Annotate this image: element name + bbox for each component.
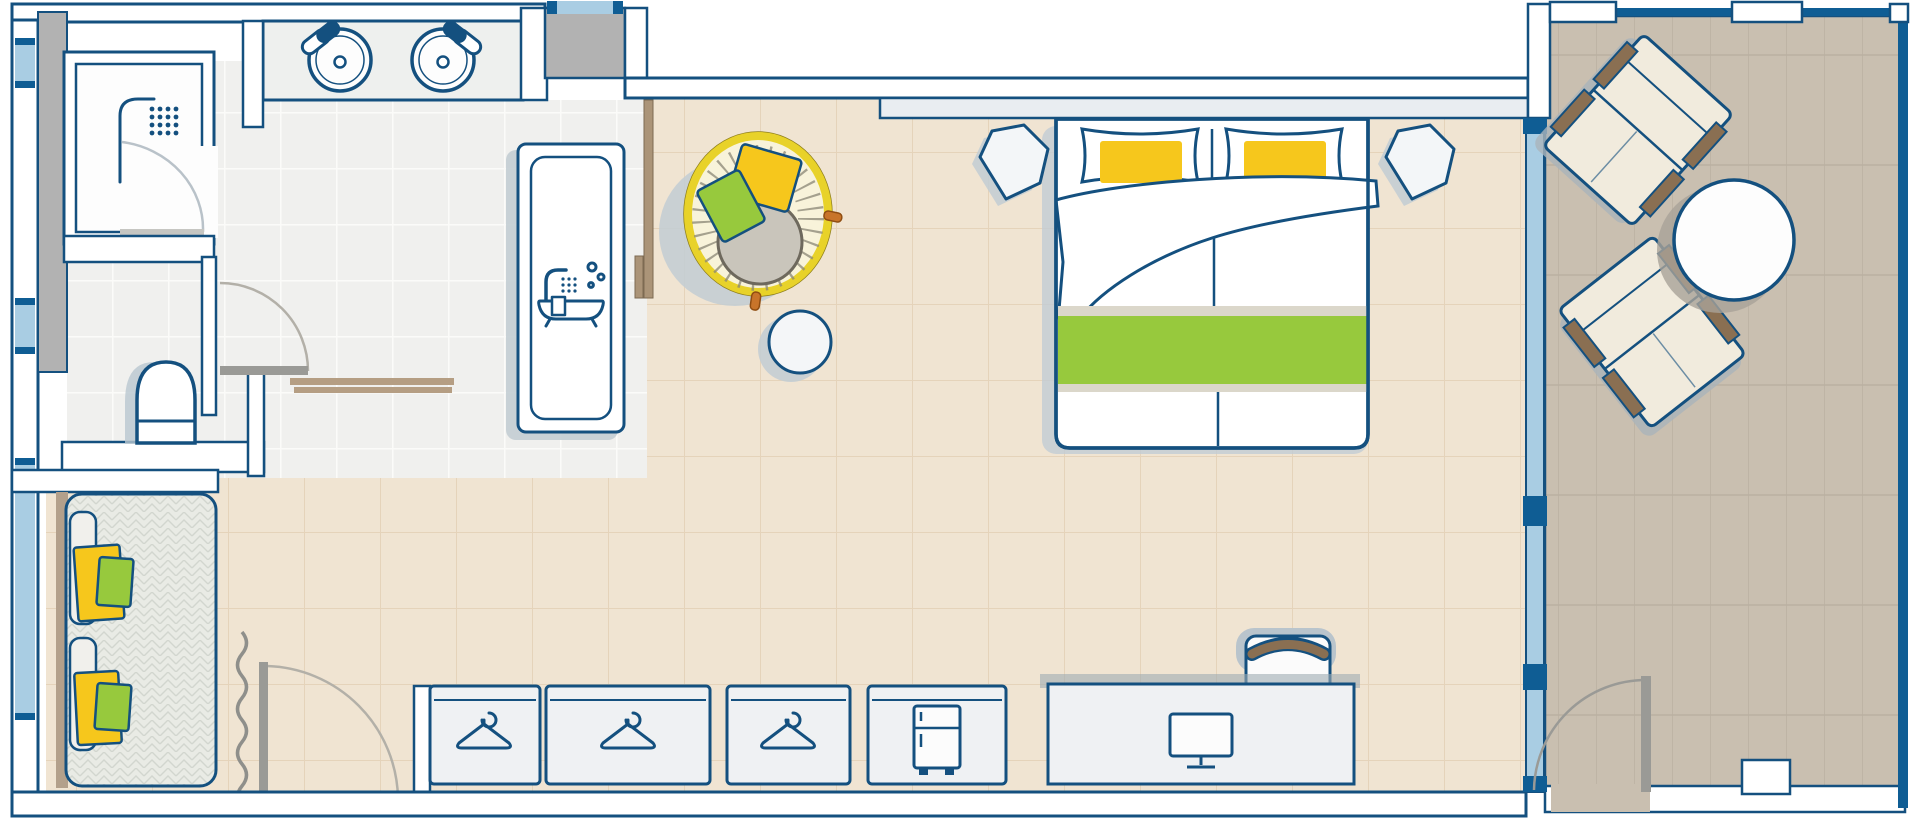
wardrobe-1 [430,686,540,784]
railing-post-bottom [1742,760,1790,794]
desk [1040,674,1360,784]
shaft-window [556,1,614,14]
wall-top [12,4,545,22]
wall-bedroom-top [625,78,1528,98]
bed-runner [1058,316,1367,384]
bathtub [506,144,624,440]
wall-niche-top [12,470,218,492]
headboard-panel [880,98,1528,118]
daybed-pillow-green-2 [94,683,131,731]
balcony-railing-right [1898,6,1908,808]
wall-vanity-left [243,21,263,127]
bed-pillow-left [1082,129,1198,183]
wall-wardrobe-left [414,686,430,792]
window-left-middle [15,298,35,354]
minibar [868,686,1006,784]
double-bed [1042,119,1378,454]
wall-balcony-junction [1528,4,1550,118]
wall-shower-bottom [64,236,214,262]
window-left-top [15,38,35,88]
wall-vanity-right [521,8,547,100]
wall-toilet-right [202,257,216,415]
vanity-counter [263,21,523,100]
pillow-accent-left [1100,141,1182,183]
floor-plan [0,0,1920,830]
wall-bottom [12,792,1526,816]
daybed-pillow-green-1 [96,557,133,607]
bed-pillow-right [1226,129,1342,183]
wardrobe-3 [727,686,850,784]
duct-shaft [545,8,625,78]
wardrobe-2 [546,686,710,784]
wall-toilet-bottom [62,442,264,472]
shower-room [64,52,218,244]
railing-post [1890,4,1908,22]
toilet [125,362,195,444]
daybed [56,492,216,788]
window-left-bottom [15,458,35,720]
glass-wall [1523,118,1547,792]
fridge-icon [914,706,960,775]
door-jamb [248,368,264,476]
